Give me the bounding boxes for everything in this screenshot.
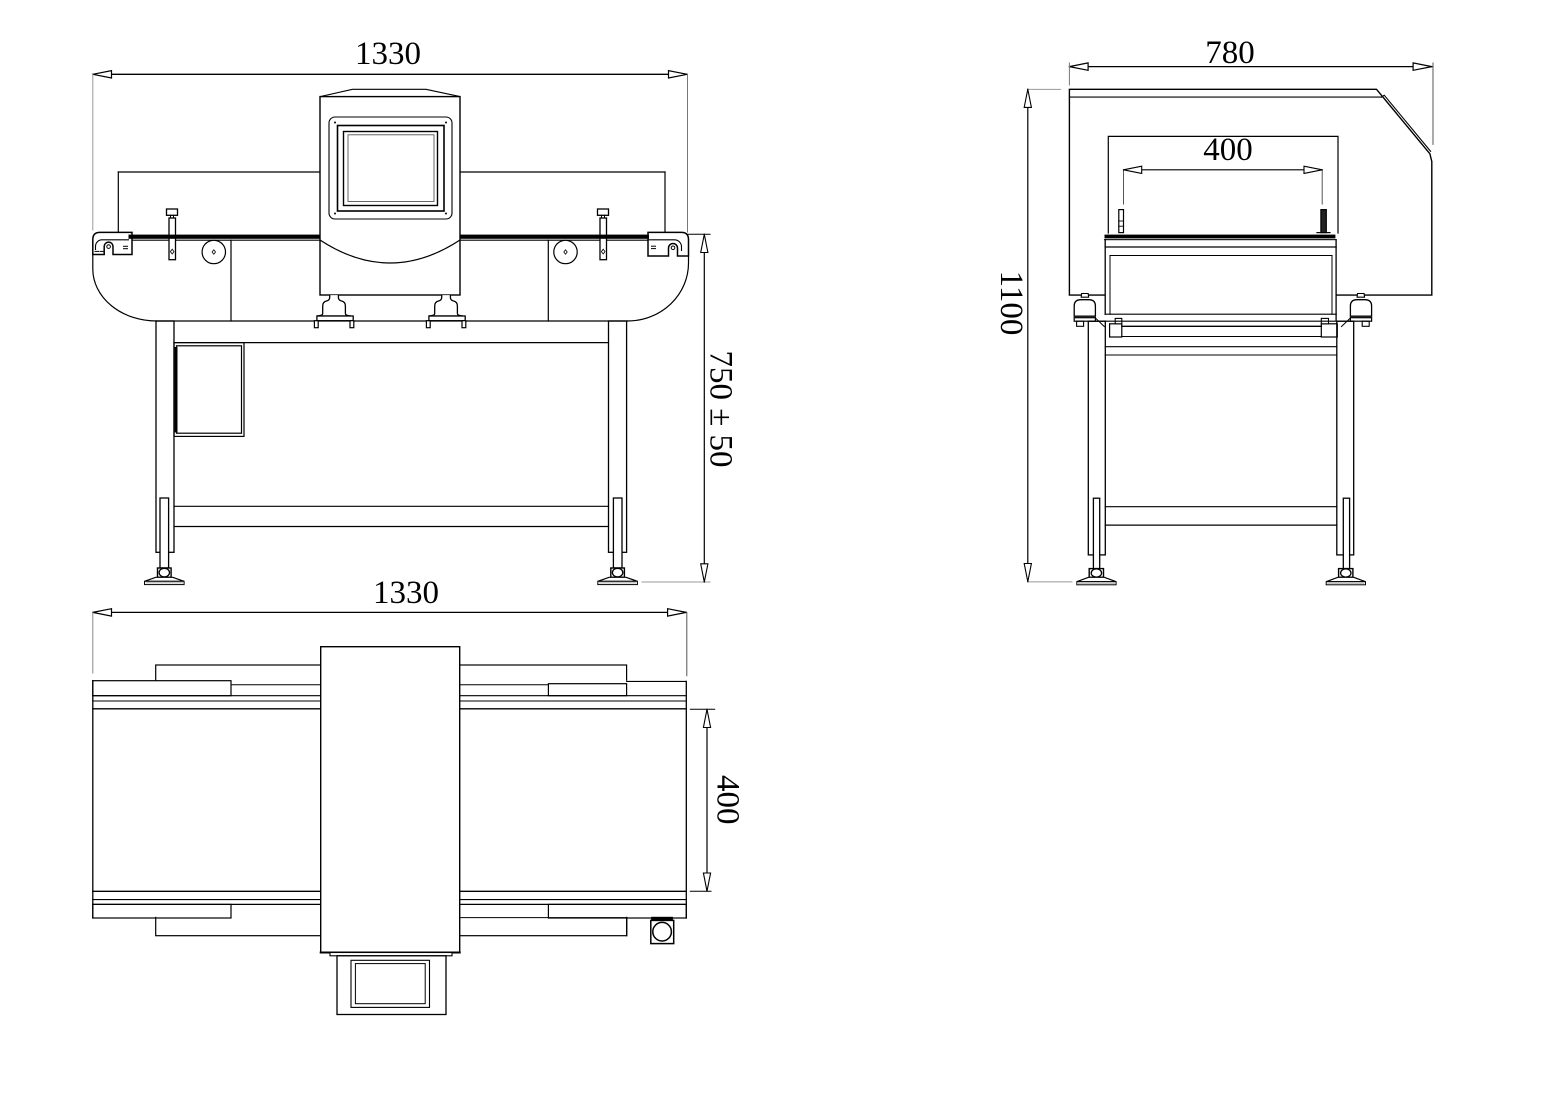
svg-text:1100: 1100 [993,271,1029,336]
svg-text:750 ± 50: 750 ± 50 [703,350,739,467]
svg-text:400: 400 [1203,132,1253,168]
svg-text:1330: 1330 [373,575,439,611]
svg-text:1330: 1330 [355,36,421,72]
svg-text:400: 400 [710,775,746,825]
svg-text:780: 780 [1205,35,1255,71]
